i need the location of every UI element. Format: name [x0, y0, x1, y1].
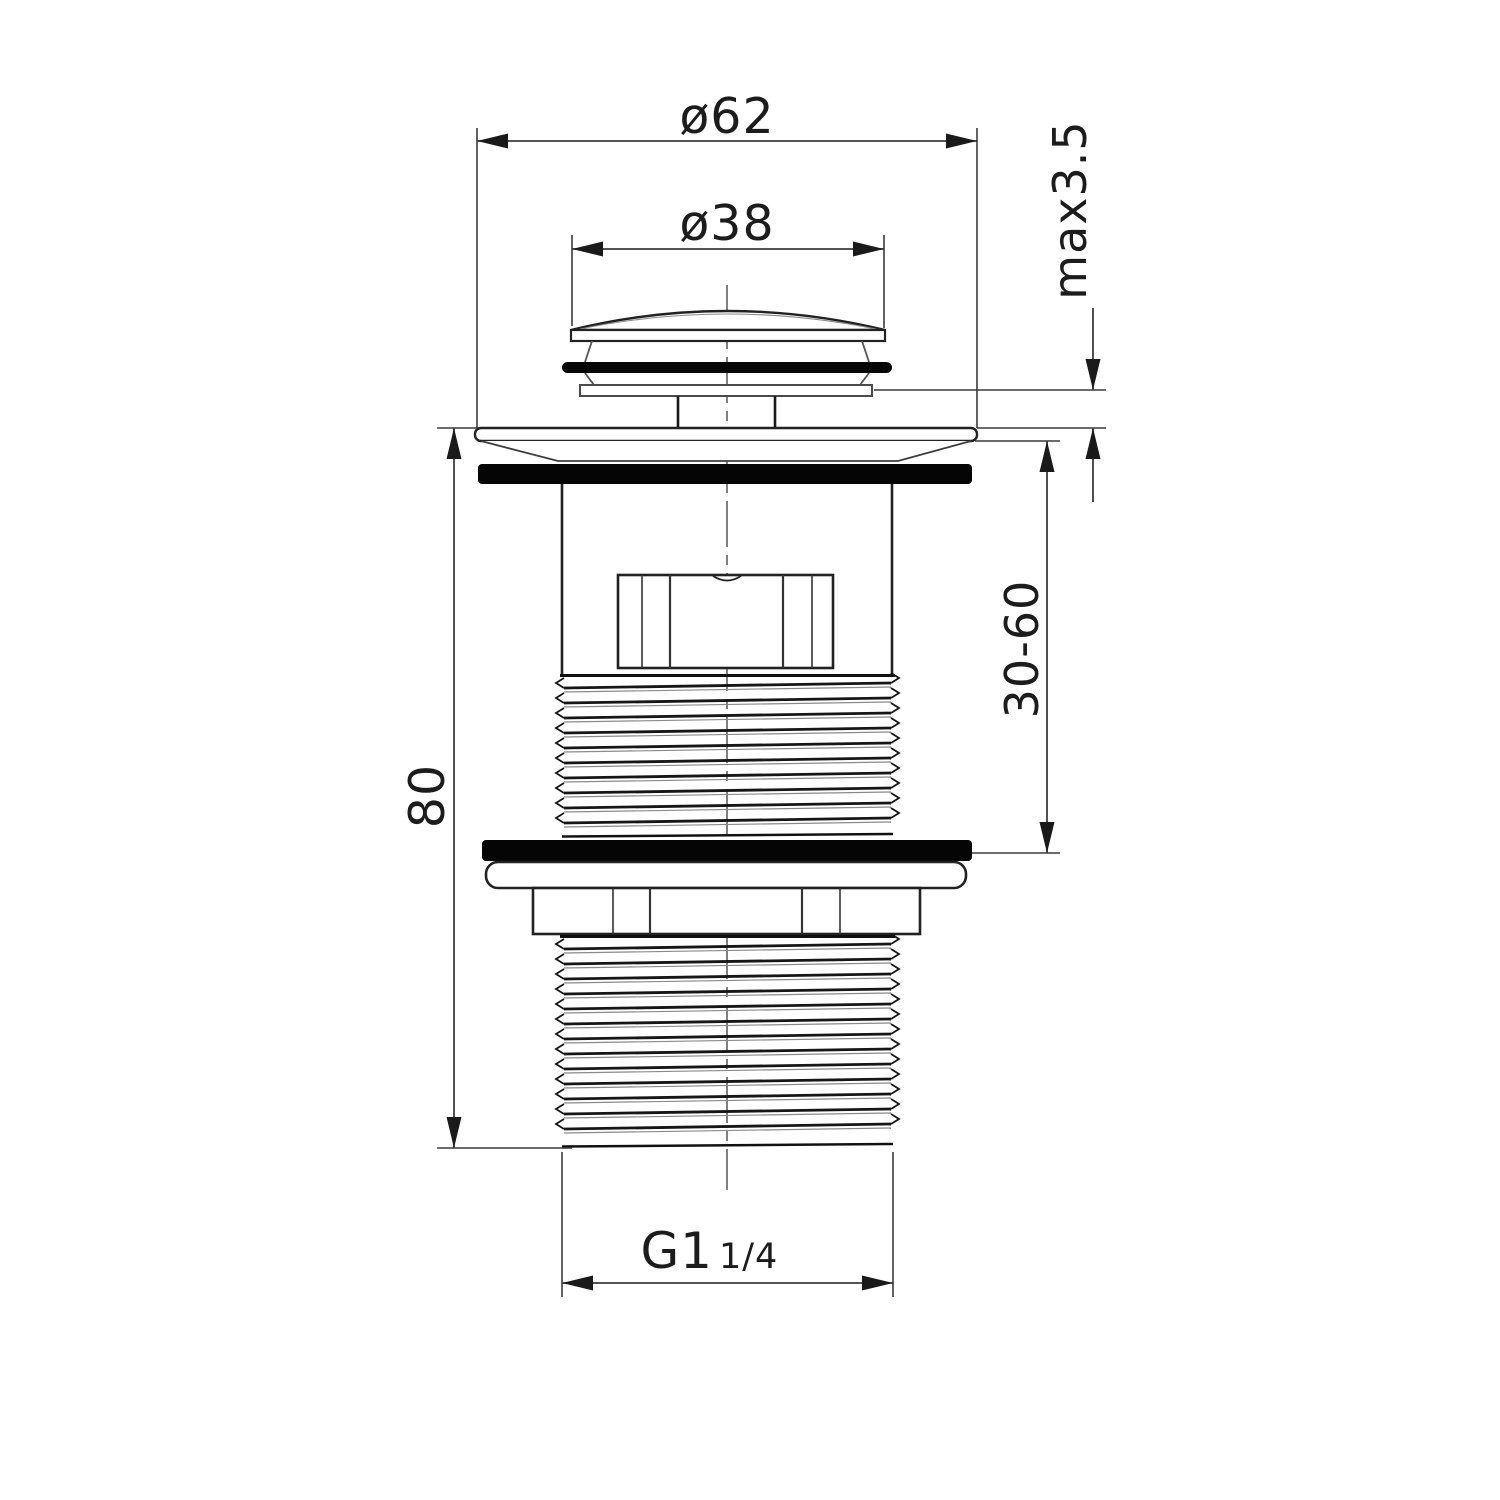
thread-ridge: [891, 748, 899, 758]
thread-ridge: [562, 834, 893, 837]
thread-ridge: [891, 808, 899, 818]
dim-overall-height: 80: [399, 428, 572, 1148]
thread-ridge: [891, 1009, 899, 1019]
thread-ridge: [891, 964, 899, 974]
thread-ridge: [556, 1059, 564, 1069]
thread-ridge: [556, 738, 564, 748]
outer-diameter-label: ø62: [679, 88, 774, 145]
thread-ridge: [556, 984, 564, 994]
body-hexagon: [618, 575, 833, 668]
clamping-range-label: 30-60: [995, 580, 1049, 719]
arrowhead: [572, 242, 603, 257]
thread-ridge: [556, 708, 564, 718]
thread-ridge: [556, 1104, 564, 1114]
thread-ridge: [556, 768, 564, 778]
arrowhead: [862, 1276, 893, 1291]
thread-ridge: [891, 1084, 899, 1094]
thread-ridge: [556, 723, 564, 733]
thread-ridge: [556, 753, 564, 763]
thread-ridge: [891, 979, 899, 989]
thread-ridge: [556, 954, 564, 964]
thread-ridge: [556, 1029, 564, 1039]
dim-clamping-range: 30-60: [972, 441, 1060, 853]
thread-ridge: [556, 798, 564, 808]
thread-ridge: [556, 1119, 564, 1129]
dim-plug-diameter: ø38: [572, 195, 884, 328]
thread-size-label-main: G1: [640, 1222, 713, 1280]
lower-gasket: [482, 840, 972, 861]
thread-ridge: [891, 1099, 899, 1109]
arrowhead: [1086, 359, 1101, 390]
arrowhead: [477, 134, 508, 149]
arrowhead: [1040, 441, 1055, 472]
arrowhead: [447, 428, 462, 459]
cap-oring-seal: [562, 362, 892, 373]
cap-base-plate: [580, 385, 872, 396]
thread-ridge: [891, 718, 899, 728]
thread-ridge: [891, 1024, 899, 1034]
thread-ridge: [891, 1054, 899, 1064]
arrowhead: [946, 134, 977, 149]
thread-ridge: [556, 678, 564, 688]
thread-ridge: [891, 778, 899, 788]
thread-ridge: [556, 969, 564, 979]
plug-diameter-label: ø38: [679, 195, 774, 252]
thread-ridge: [556, 1089, 564, 1099]
thread-ridge: [556, 1014, 564, 1024]
thread-ridge: [891, 763, 899, 773]
arrowhead: [1040, 822, 1055, 853]
thread-ridge: [891, 1039, 899, 1049]
thread-ridge: [891, 1114, 899, 1124]
backnut-hexagon: [533, 888, 920, 934]
max-deck-label: max3.5: [1043, 120, 1097, 299]
thread-ridge: [556, 813, 564, 823]
overall-height-label: 80: [399, 764, 456, 828]
push-cap-dome: [571, 311, 885, 341]
thread-ridge: [891, 733, 899, 743]
drain-waste-technical-drawing-page: ø62 ø38 max3.5 30-60 80: [0, 0, 1500, 1500]
thread-ridge: [891, 994, 899, 1004]
thread-ridge: [556, 693, 564, 703]
thread-ridge: [891, 949, 899, 959]
technical-drawing-canvas: ø62 ø38 max3.5 30-60 80: [0, 0, 1500, 1500]
thread-ridge: [891, 688, 899, 698]
thread-ridge: [891, 793, 899, 803]
thread-ridge: [556, 1044, 564, 1054]
arrowhead: [447, 1117, 462, 1148]
thread-ridge: [556, 939, 564, 949]
arrowhead: [1086, 428, 1101, 459]
thread-ridge: [556, 1074, 564, 1084]
thread-ridge: [562, 1144, 893, 1147]
arrowhead: [562, 1276, 593, 1291]
flange-gasket: [478, 464, 972, 484]
top-flange: [475, 428, 977, 461]
thread-size-label-fraction: 1/4: [719, 1237, 778, 1277]
thread-ridge: [891, 934, 899, 944]
thread-ridge: [556, 783, 564, 793]
thread-ridge: [891, 703, 899, 713]
thread-ridge: [891, 673, 899, 683]
arrowhead: [853, 242, 884, 257]
thread-ridge: [556, 999, 564, 1009]
thread-ridge: [891, 1069, 899, 1079]
friction-washer: [486, 862, 966, 888]
